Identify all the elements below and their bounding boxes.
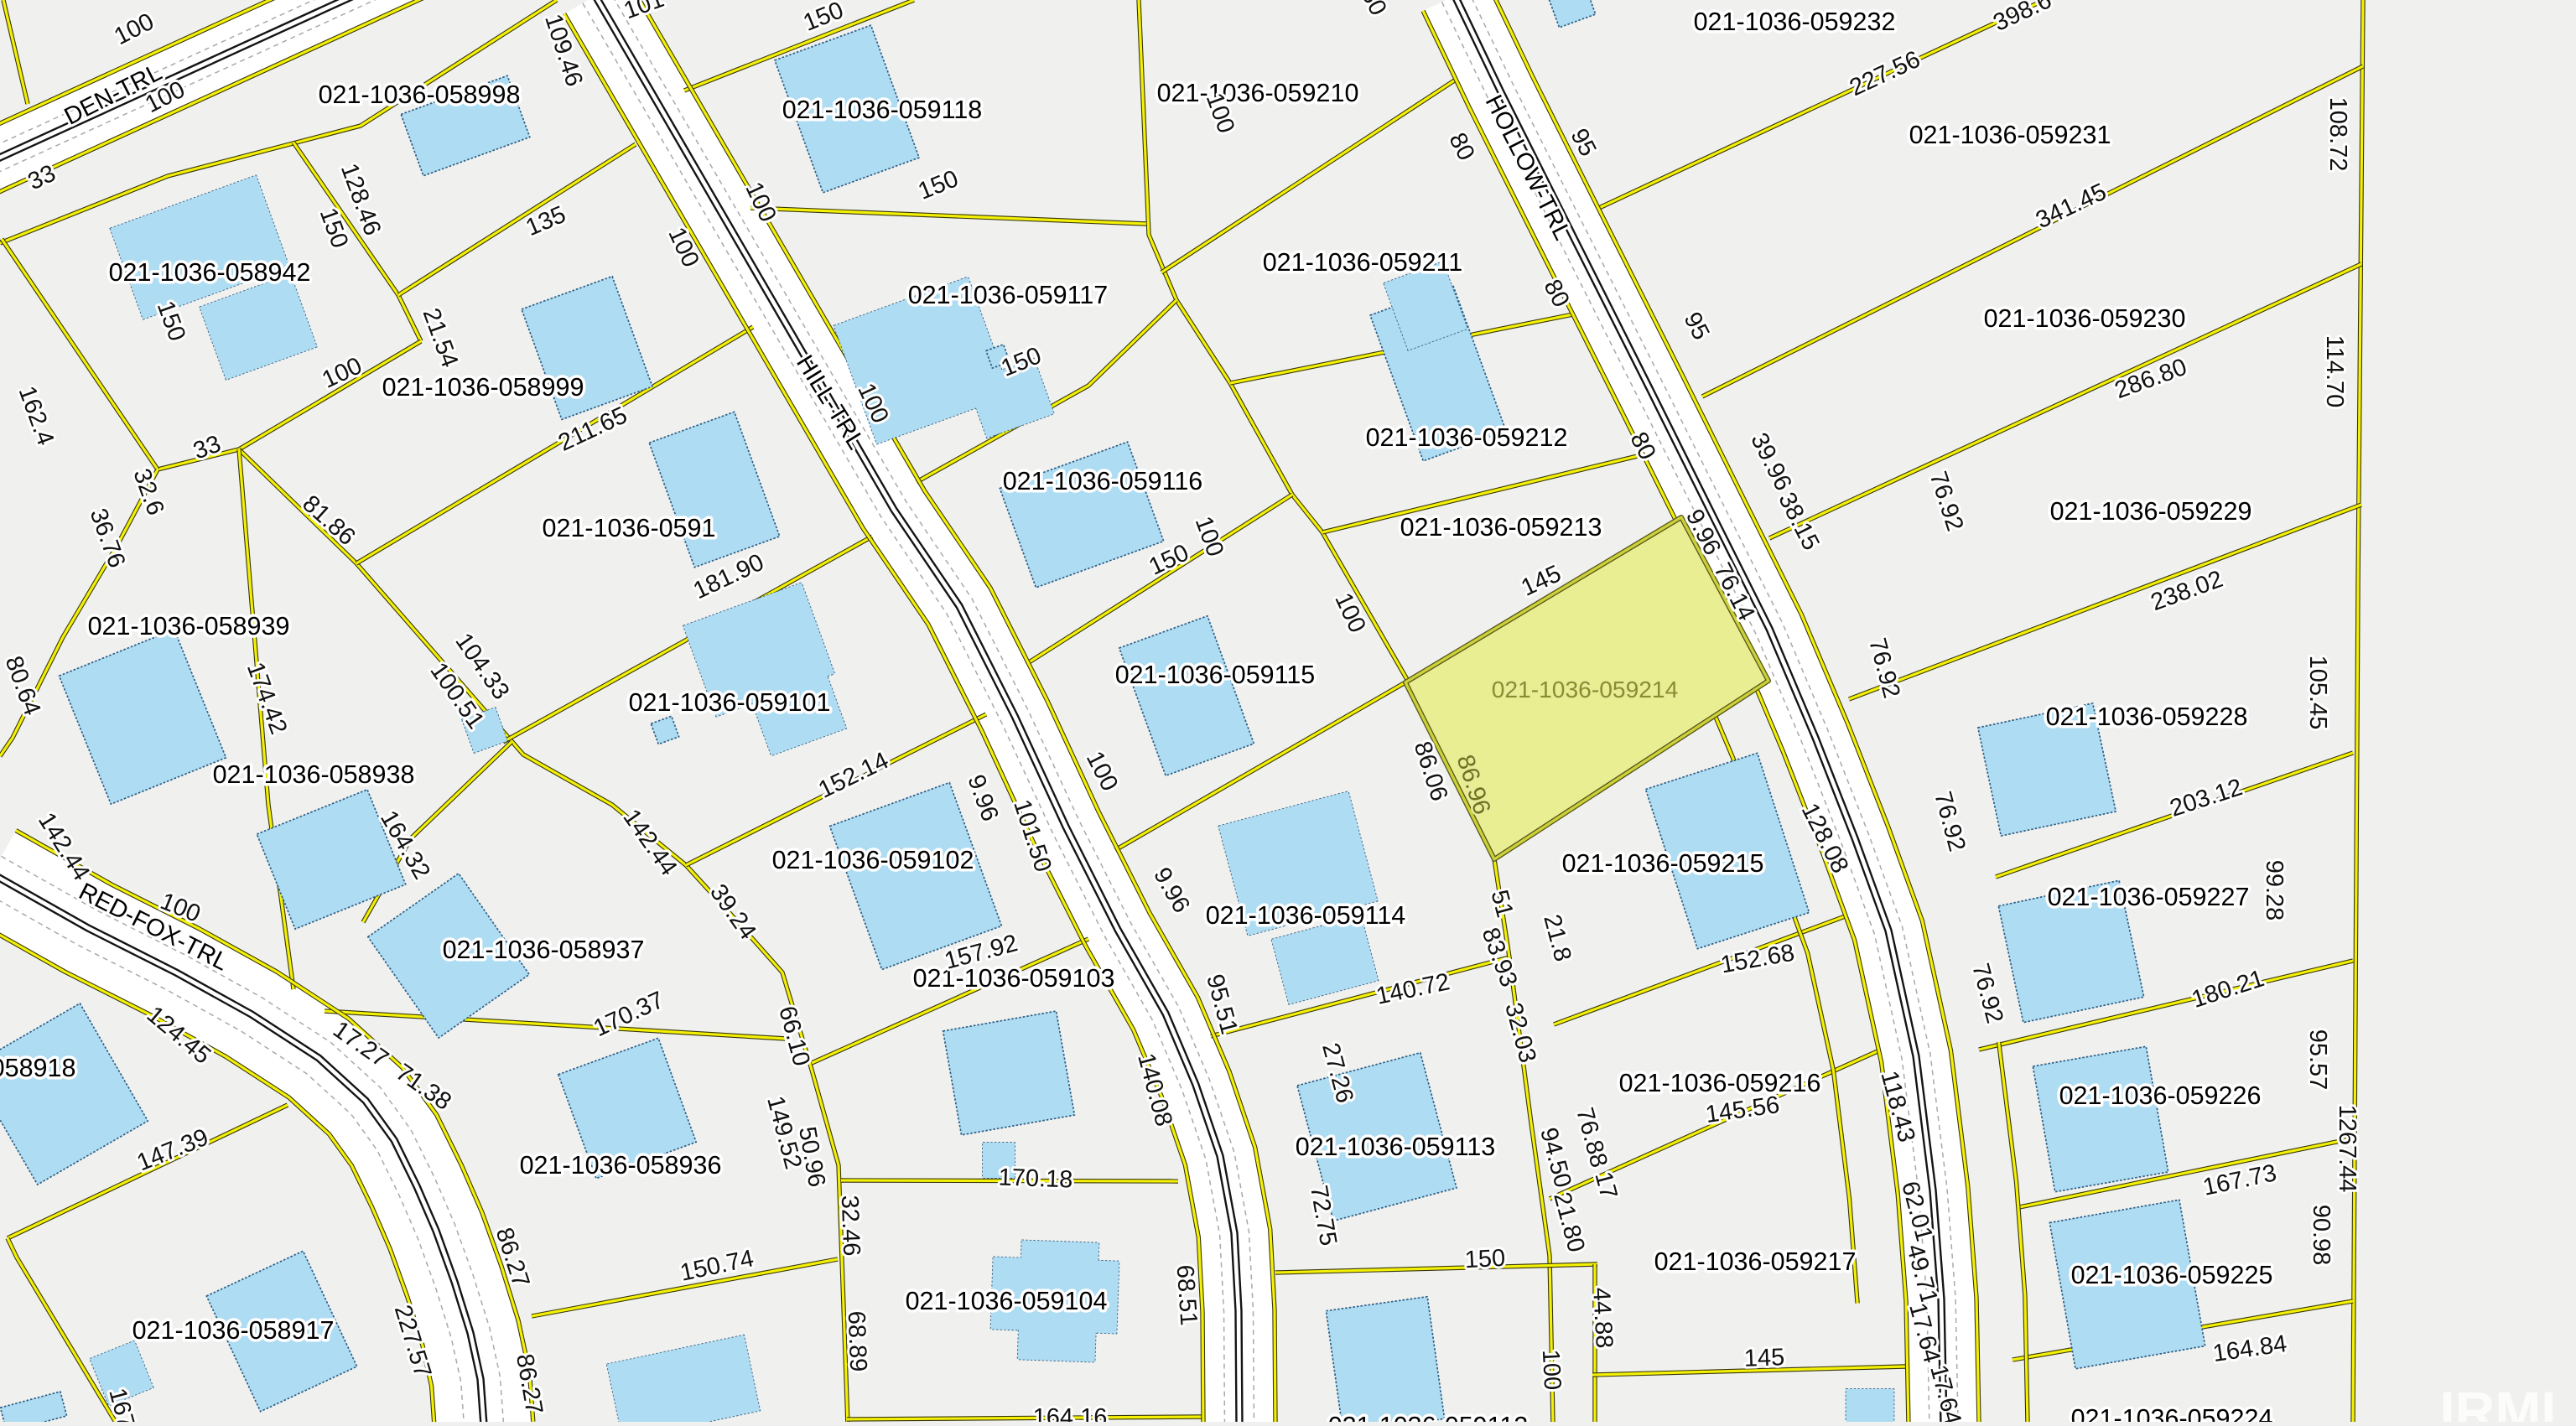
svg-text:021-1036-059216: 021-1036-059216 xyxy=(1619,1069,1821,1097)
svg-text:021-1036-058942: 021-1036-058942 xyxy=(109,258,311,287)
svg-text:021-1036-058938: 021-1036-058938 xyxy=(213,760,415,789)
svg-text:021-1036-059227: 021-1036-059227 xyxy=(2048,883,2250,911)
svg-text:021-1036-058939: 021-1036-058939 xyxy=(88,612,290,640)
svg-text:021-1036-059212: 021-1036-059212 xyxy=(1366,423,1568,452)
svg-text:150: 150 xyxy=(1464,1245,1506,1273)
svg-text:021-1036-059115: 021-1036-059115 xyxy=(1115,661,1316,689)
svg-text:108.72: 108.72 xyxy=(2324,97,2351,172)
svg-text:021-1036-058918: 021-1036-058918 xyxy=(0,1054,75,1082)
svg-text:95.57: 95.57 xyxy=(2304,1029,2331,1091)
svg-text:114.70: 114.70 xyxy=(2321,335,2348,408)
svg-text:021-1036-059213: 021-1036-059213 xyxy=(1400,513,1602,542)
svg-text:021-1036-059104: 021-1036-059104 xyxy=(906,1287,1108,1315)
svg-text:021-1036-059224: 021-1036-059224 xyxy=(2071,1404,2273,1422)
svg-text:021-1036-059103: 021-1036-059103 xyxy=(913,964,1115,993)
svg-text:170.18: 170.18 xyxy=(998,1164,1073,1193)
svg-text:1267.44: 1267.44 xyxy=(2334,1105,2360,1193)
svg-text:021-1036-059117: 021-1036-059117 xyxy=(908,281,1109,309)
svg-text:44.88: 44.88 xyxy=(1587,1287,1618,1349)
svg-text:021-1036-059211: 021-1036-059211 xyxy=(1263,248,1463,277)
svg-text:021-1036-059215: 021-1036-059215 xyxy=(1562,849,1764,878)
svg-text:021-1036-059112: 021-1036-059112 xyxy=(1328,1412,1529,1422)
svg-text:021-1036-059101: 021-1036-059101 xyxy=(629,688,831,717)
svg-text:021-1036-058917: 021-1036-058917 xyxy=(132,1316,335,1345)
svg-text:021-1036-059210: 021-1036-059210 xyxy=(1157,79,1359,107)
svg-text:IRMLS: IRMLS xyxy=(2439,1380,2576,1422)
svg-text:021-1036-059230: 021-1036-059230 xyxy=(1984,304,2186,333)
svg-text:021-1036-059232: 021-1036-059232 xyxy=(1694,8,1896,36)
svg-text:021-1036-058936: 021-1036-058936 xyxy=(520,1151,722,1180)
svg-text:90.98: 90.98 xyxy=(2308,1205,2334,1266)
svg-text:021-1036-059226: 021-1036-059226 xyxy=(2059,1081,2262,1110)
svg-text:021-1036-058937: 021-1036-058937 xyxy=(443,936,645,964)
svg-text:164.16: 164.16 xyxy=(1033,1404,1108,1422)
svg-text:021-1036-059231: 021-1036-059231 xyxy=(1909,121,2111,149)
svg-text:32.46: 32.46 xyxy=(836,1195,865,1257)
svg-text:021-1036-058998: 021-1036-058998 xyxy=(319,80,521,109)
svg-text:021-1036-059113: 021-1036-059113 xyxy=(1296,1133,1496,1161)
svg-text:021-1036-059229: 021-1036-059229 xyxy=(2050,497,2252,526)
svg-text:021-1036-059228: 021-1036-059228 xyxy=(2046,703,2248,731)
svg-text:100: 100 xyxy=(1537,1349,1566,1391)
svg-text:021-1036-059214: 021-1036-059214 xyxy=(1492,676,1679,703)
svg-text:021-1036-0591: 021-1036-0591 xyxy=(543,514,716,542)
svg-text:021-1036-059118: 021-1036-059118 xyxy=(782,96,983,124)
svg-text:021-1036-059102: 021-1036-059102 xyxy=(772,846,974,874)
svg-text:021-1036-059217: 021-1036-059217 xyxy=(1654,1247,1857,1276)
svg-text:021-1036-059225: 021-1036-059225 xyxy=(2071,1261,2273,1289)
svg-text:021-1036-059116: 021-1036-059116 xyxy=(1003,467,1203,495)
svg-text:68.51: 68.51 xyxy=(1171,1264,1202,1327)
svg-text:021-1036-059114: 021-1036-059114 xyxy=(1206,901,1406,930)
svg-text:99.28: 99.28 xyxy=(2261,860,2288,921)
svg-text:68.89: 68.89 xyxy=(843,1310,872,1372)
svg-text:145: 145 xyxy=(1743,1344,1784,1372)
svg-text:105.45: 105.45 xyxy=(2304,656,2331,730)
svg-text:021-1036-058999: 021-1036-058999 xyxy=(382,373,584,402)
